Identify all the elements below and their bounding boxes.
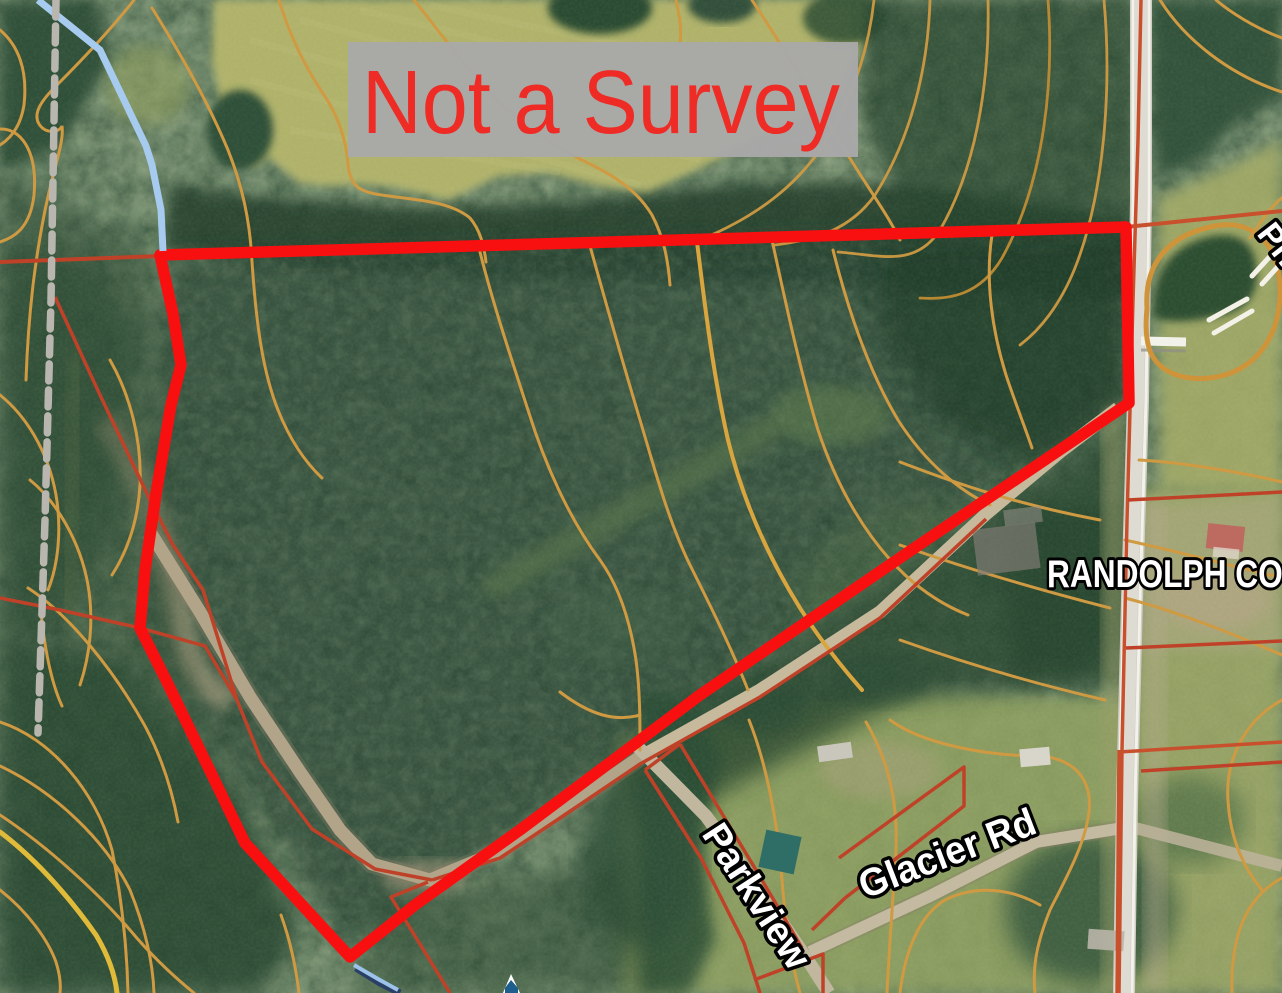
- svg-text:RANDOLPH COUNTY: RANDOLPH COUNTY: [1047, 553, 1282, 596]
- svg-text:Not a Survey: Not a Survey: [362, 53, 840, 153]
